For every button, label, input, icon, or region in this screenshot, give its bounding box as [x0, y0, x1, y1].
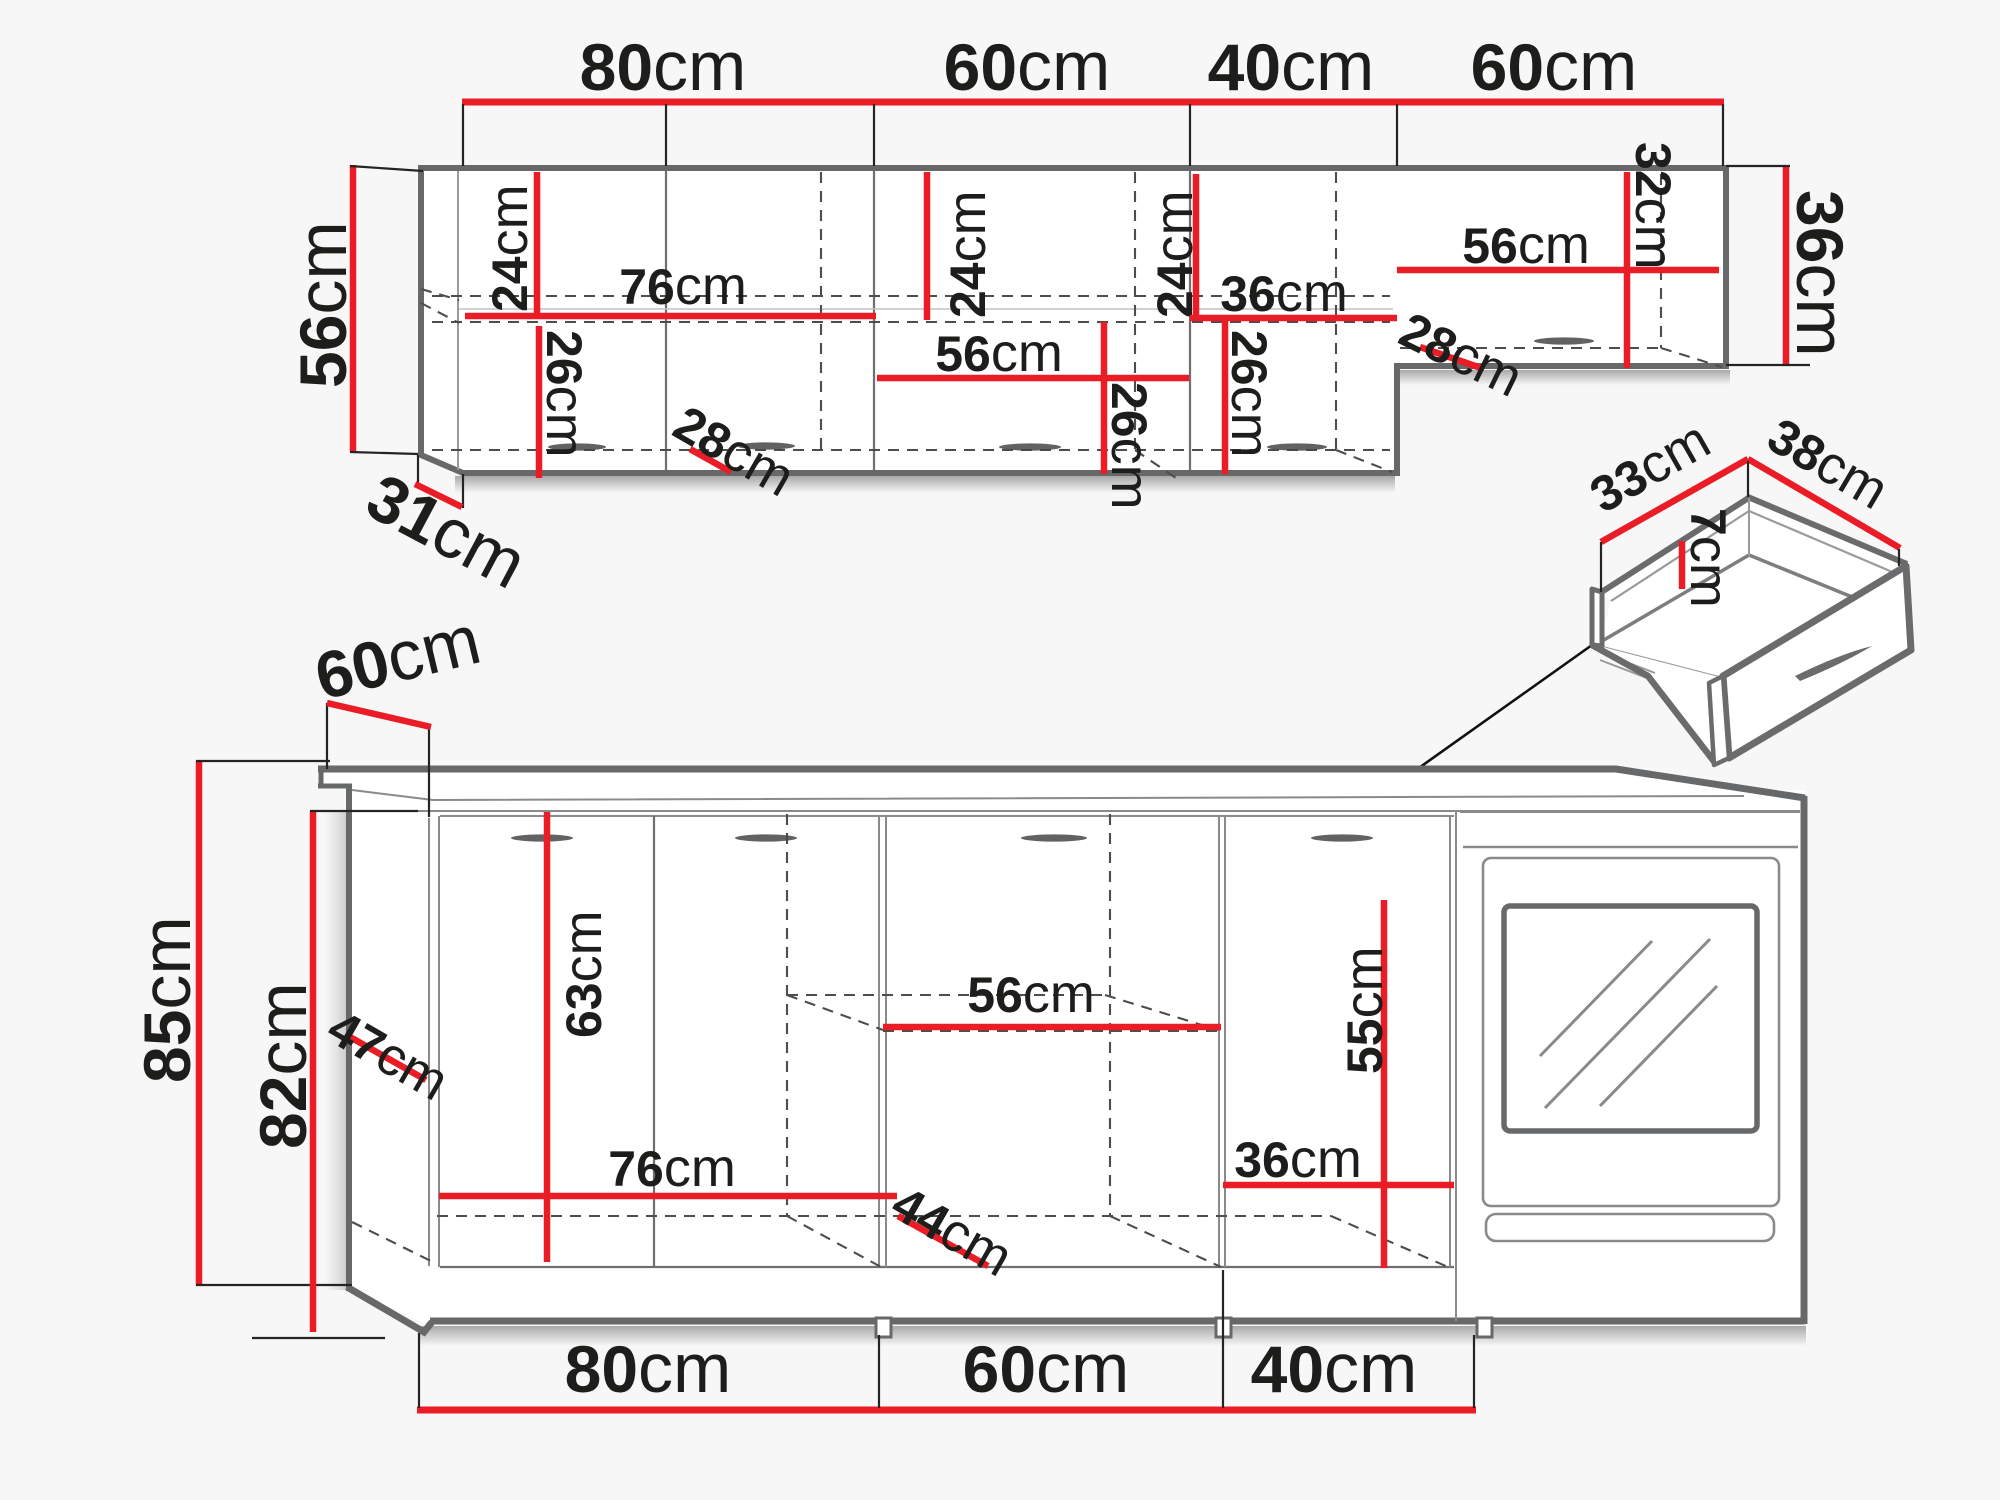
svg-text:36cm: 36cm: [1220, 263, 1348, 323]
svg-text:26cm: 26cm: [1220, 330, 1280, 458]
svg-text:56cm: 56cm: [967, 964, 1095, 1024]
svg-text:36cm: 36cm: [1234, 1129, 1362, 1189]
svg-text:40cm: 40cm: [1251, 1329, 1418, 1407]
svg-text:76cm: 76cm: [619, 256, 747, 316]
svg-text:63cm: 63cm: [553, 910, 613, 1038]
svg-text:24cm: 24cm: [479, 184, 539, 312]
svg-text:60cm: 60cm: [944, 27, 1111, 105]
svg-text:76cm: 76cm: [608, 1138, 736, 1198]
svg-text:56cm: 56cm: [935, 323, 1063, 383]
svg-text:40cm: 40cm: [1208, 27, 1375, 105]
svg-text:56cm: 56cm: [1462, 215, 1590, 275]
svg-text:55cm: 55cm: [1334, 946, 1394, 1074]
svg-text:60cm: 60cm: [963, 1329, 1130, 1407]
svg-text:56cm: 56cm: [283, 221, 361, 388]
svg-text:85cm: 85cm: [127, 916, 205, 1083]
svg-text:80cm: 80cm: [565, 1329, 732, 1407]
svg-text:60cm: 60cm: [1471, 27, 1638, 105]
svg-text:7cm: 7cm: [1679, 508, 1739, 608]
svg-text:24cm: 24cm: [937, 190, 997, 318]
svg-text:26cm: 26cm: [1100, 382, 1160, 510]
svg-text:26cm: 26cm: [535, 330, 595, 458]
svg-text:36cm: 36cm: [1782, 190, 1860, 357]
svg-text:82cm: 82cm: [243, 982, 321, 1149]
svg-text:80cm: 80cm: [580, 27, 747, 105]
svg-text:24cm: 24cm: [1144, 190, 1204, 318]
svg-text:32cm: 32cm: [1624, 142, 1684, 270]
